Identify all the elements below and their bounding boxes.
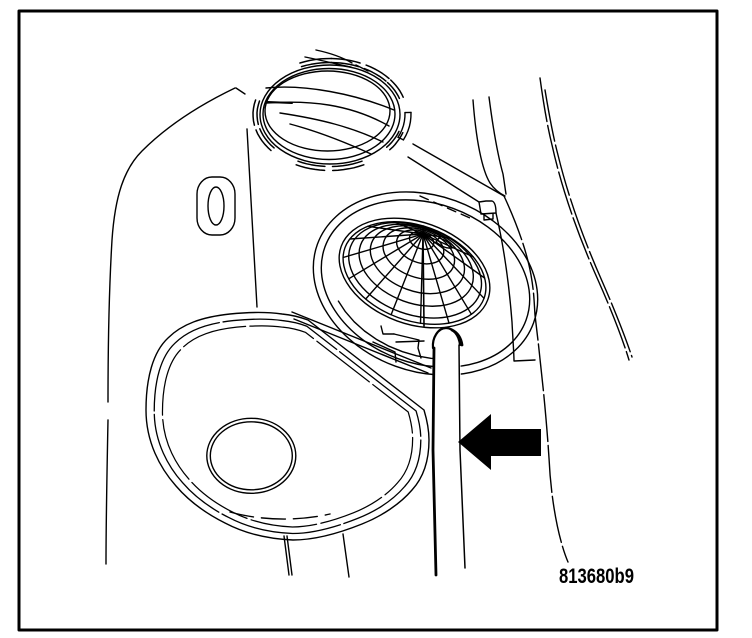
svg-text:813680b9: 813680b9 (559, 565, 634, 588)
